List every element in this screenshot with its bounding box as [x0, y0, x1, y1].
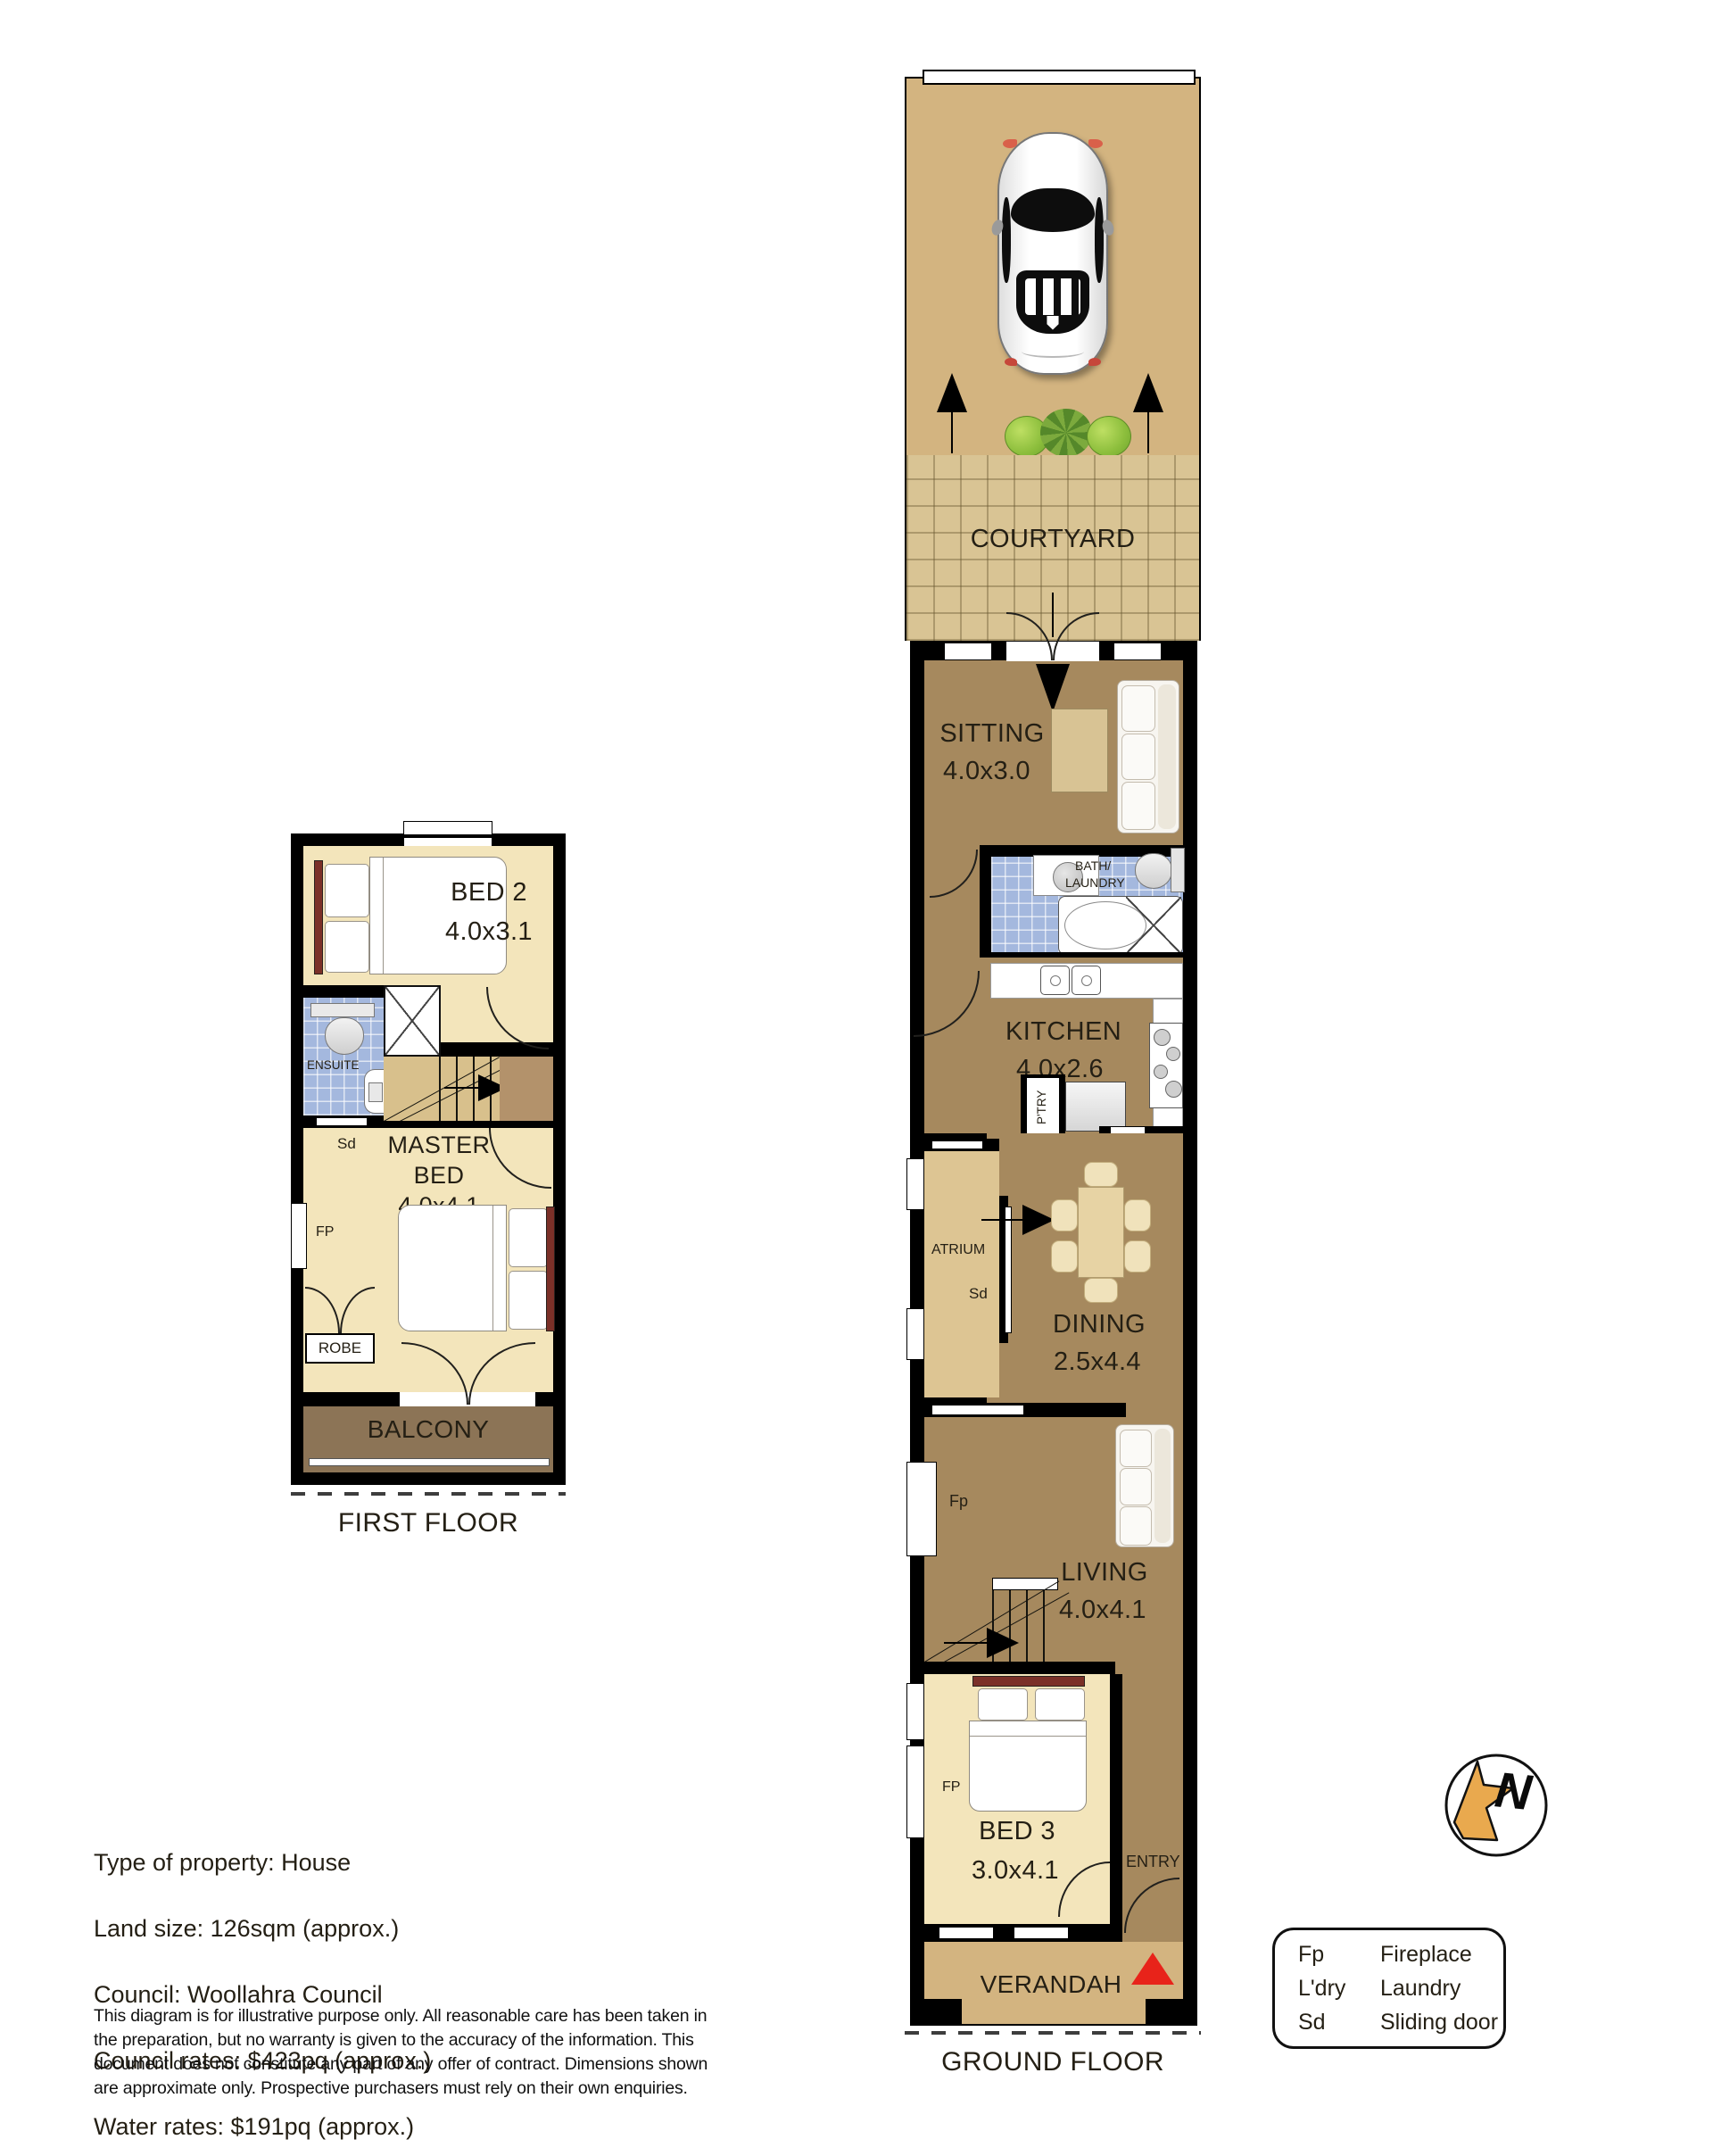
pillow	[325, 864, 369, 917]
chair	[1084, 1278, 1118, 1303]
pillow	[509, 1271, 548, 1330]
dining-dim: 2.5x4.4	[1054, 1347, 1141, 1377]
sitting-label: SITTING	[939, 719, 1044, 749]
property-line: Water rates: $191pq (approx.)	[94, 2110, 431, 2144]
sliding-door	[1005, 1207, 1012, 1333]
bed-headboard	[314, 860, 323, 974]
pillow	[1035, 1688, 1085, 1721]
toilet-tank	[310, 1003, 375, 1017]
entry-label: ENTRY	[1126, 1853, 1180, 1871]
robe-label: ROBE	[319, 1339, 361, 1356]
legend: Fp Fireplace L'dry Laundry Sd Sliding do…	[1272, 1928, 1506, 2049]
bath-label-1: BATH/	[1075, 858, 1111, 873]
rug	[1051, 709, 1108, 792]
fireplace	[906, 1746, 924, 1838]
floorplan-page: COURTYARD SITTING 4.0x3.0 BATH/ LAUNDRY	[0, 0, 1713, 2156]
passage	[1126, 1403, 1183, 1417]
stove-icon	[1149, 1023, 1183, 1108]
pantry-box: P'TRY	[1027, 1078, 1059, 1133]
bed-headboard	[546, 1207, 555, 1331]
ensuite-label: ENSUITE	[307, 1058, 360, 1072]
bed-headboard	[972, 1676, 1085, 1687]
sliding-door	[316, 1117, 368, 1126]
pillow	[325, 921, 369, 973]
first-floor-title: FIRST FLOOR	[338, 1508, 518, 1538]
verandah-post	[924, 1999, 962, 2026]
property-line: Land size: 126sqm (approx.)	[94, 1912, 431, 1945]
pantry-label: P'TRY	[1035, 1090, 1048, 1124]
courtyard-label: COURTYARD	[971, 525, 1136, 554]
fridge-icon	[1065, 1082, 1126, 1132]
bed	[398, 1205, 507, 1331]
chair	[1124, 1240, 1151, 1273]
stair-arrow-stem	[444, 1087, 480, 1089]
sofa	[1115, 1424, 1174, 1547]
legend-meaning: Fireplace	[1380, 1942, 1503, 1968]
ensuite-sink	[364, 1069, 385, 1114]
chair	[1051, 1240, 1078, 1273]
bed3-dim: 3.0x4.1	[972, 1856, 1059, 1886]
palm-icon	[1040, 409, 1092, 457]
boundary-dashed-line	[905, 2031, 1201, 2035]
kitchen-sink-icon	[1072, 966, 1101, 995]
bed2-dim: 4.0x3.1	[445, 917, 533, 947]
chair	[1051, 1199, 1078, 1231]
verandah-post	[1146, 1999, 1183, 2026]
balcony-label: BALCONY	[368, 1415, 490, 1444]
door-centerline	[1052, 593, 1054, 637]
dining-table	[1078, 1187, 1124, 1278]
balcony-rail	[309, 1458, 550, 1466]
kitchen-sink-icon	[1040, 966, 1070, 995]
chair	[1124, 1199, 1151, 1231]
car-rear-window	[1016, 270, 1089, 334]
living-dim: 4.0x4.1	[1059, 1596, 1146, 1625]
stair-landing	[500, 1057, 553, 1121]
car-icon	[997, 132, 1108, 375]
master-label-2: BED	[414, 1162, 465, 1190]
legend-meaning: Laundry	[1380, 1976, 1503, 2002]
sofa	[1117, 680, 1179, 833]
entry-marker-icon	[1131, 1953, 1174, 1985]
window	[1014, 1927, 1069, 1939]
window	[944, 643, 992, 660]
pillow	[509, 1208, 548, 1267]
fireplace	[906, 1462, 937, 1556]
sd-atrium-label: Sd	[969, 1285, 988, 1303]
legend-abbr: Fp	[1298, 1942, 1380, 1968]
legend-abbr: L'dry	[1298, 1976, 1380, 2002]
flow-arrow	[1022, 1205, 1055, 1235]
bath-label-2: LAUNDRY	[1065, 875, 1125, 890]
kitchen-label: KITCHEN	[1005, 1017, 1121, 1047]
stair-landing	[992, 1578, 1058, 1590]
bed3-label: BED 3	[979, 1817, 1055, 1846]
boundary-dashed-line	[291, 1492, 566, 1496]
window	[939, 1927, 994, 1939]
gate-strip	[923, 70, 1196, 85]
sd-ensuite-label: Sd	[337, 1135, 356, 1153]
disclaimer-text: This diagram is for illustrative purpose…	[94, 2004, 714, 2101]
property-line: Type of property: House	[94, 1846, 431, 1879]
legend-meaning: Sliding door	[1380, 2010, 1503, 2036]
window	[906, 1683, 924, 1740]
sitting-dim: 4.0x3.0	[943, 757, 1030, 786]
pillow	[978, 1688, 1028, 1721]
entry-direction-arrow	[1036, 664, 1070, 712]
bath-wall	[980, 845, 991, 958]
window	[931, 1140, 983, 1149]
drive-arrow-stem	[951, 410, 953, 453]
property-details: Type of property: House Land size: 126sq…	[94, 1813, 431, 2156]
drive-arrow-icon	[1133, 373, 1163, 412]
flow-arrow-stem	[981, 1219, 1024, 1221]
bed	[369, 857, 507, 974]
atrium-label: ATRIUM	[931, 1242, 985, 1258]
living-label: LIVING	[1061, 1558, 1148, 1588]
bed	[969, 1721, 1087, 1812]
bed2-label: BED 2	[451, 878, 527, 908]
chair	[1084, 1162, 1118, 1187]
window	[1113, 643, 1162, 660]
ground-floor-title: GROUND FLOOR	[941, 2047, 1164, 2077]
robe-box: ROBE	[305, 1333, 375, 1364]
toilet-icon	[1135, 853, 1172, 889]
north-arrow-icon: N	[1442, 1751, 1551, 1860]
ensuite-top-wall	[303, 985, 384, 998]
shower	[384, 985, 441, 1057]
toilet-icon	[325, 1017, 364, 1055]
chimney-bump	[403, 821, 492, 835]
master-label-1: MASTER	[388, 1132, 491, 1159]
window	[931, 1405, 1024, 1415]
legend-abbr: Sd	[1298, 2010, 1380, 2036]
drive-arrow-stem	[1147, 410, 1149, 453]
car-windshield	[1011, 188, 1095, 232]
window	[906, 1158, 924, 1210]
fireplace	[291, 1203, 307, 1269]
stair-arrow	[987, 1628, 1019, 1658]
shower-over-bath	[1126, 897, 1181, 954]
bed3-entry-wall	[1110, 1674, 1122, 1924]
fp-bed3-label: FP	[942, 1779, 960, 1795]
bush-icon	[1087, 416, 1131, 457]
drive-arrow-icon	[937, 373, 967, 412]
stair-arrow-stem	[944, 1642, 989, 1644]
toilet-tank	[1171, 848, 1185, 892]
fp-living-label: Fp	[949, 1492, 968, 1511]
dining-label: DINING	[1053, 1310, 1146, 1339]
fp-master-label: FP	[316, 1224, 334, 1240]
compass-letter: N	[1493, 1761, 1535, 1820]
window	[906, 1308, 924, 1360]
verandah-label: VERANDAH	[981, 1970, 1122, 1999]
room-atrium	[924, 1151, 999, 1397]
passage	[1115, 1662, 1183, 1674]
